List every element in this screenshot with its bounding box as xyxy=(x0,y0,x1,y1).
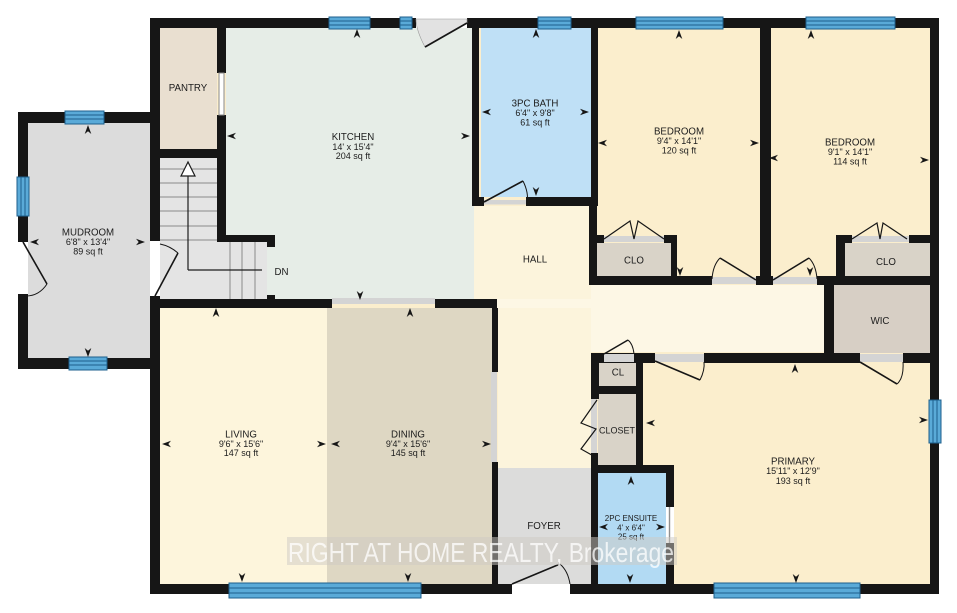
svg-text:193 sq ft: 193 sq ft xyxy=(776,476,811,486)
svg-text:2PC ENSUITE: 2PC ENSUITE xyxy=(605,514,657,523)
svg-text:CLO: CLO xyxy=(624,256,644,267)
svg-text:RIGHT AT HOME REALTY, Brokerag: RIGHT AT HOME REALTY, Brokerage xyxy=(288,537,674,568)
svg-text:89 sq ft: 89 sq ft xyxy=(73,247,103,257)
svg-text:PANTRY: PANTRY xyxy=(169,83,208,94)
svg-text:15'11" x 12'9": 15'11" x 12'9" xyxy=(766,466,820,476)
svg-text:CLO: CLO xyxy=(876,257,896,268)
svg-text:61 sq ft: 61 sq ft xyxy=(520,117,550,127)
svg-text:CLOSET: CLOSET xyxy=(599,426,636,436)
svg-text:147 sq ft: 147 sq ft xyxy=(224,448,259,458)
svg-text:145 sq ft: 145 sq ft xyxy=(391,448,426,458)
svg-text:120 sq ft: 120 sq ft xyxy=(662,146,697,156)
svg-text:WIC: WIC xyxy=(871,316,890,327)
svg-text:204 sq ft: 204 sq ft xyxy=(336,151,371,161)
svg-text:4' x 6'4": 4' x 6'4" xyxy=(617,524,645,533)
svg-text:CL: CL xyxy=(612,368,625,379)
svg-text:9'4" x 14'1": 9'4" x 14'1" xyxy=(657,136,701,146)
svg-text:114 sq ft: 114 sq ft xyxy=(833,157,867,167)
svg-text:HALL: HALL xyxy=(523,255,548,266)
svg-text:DN: DN xyxy=(275,267,289,278)
svg-text:FOYER: FOYER xyxy=(527,521,560,532)
